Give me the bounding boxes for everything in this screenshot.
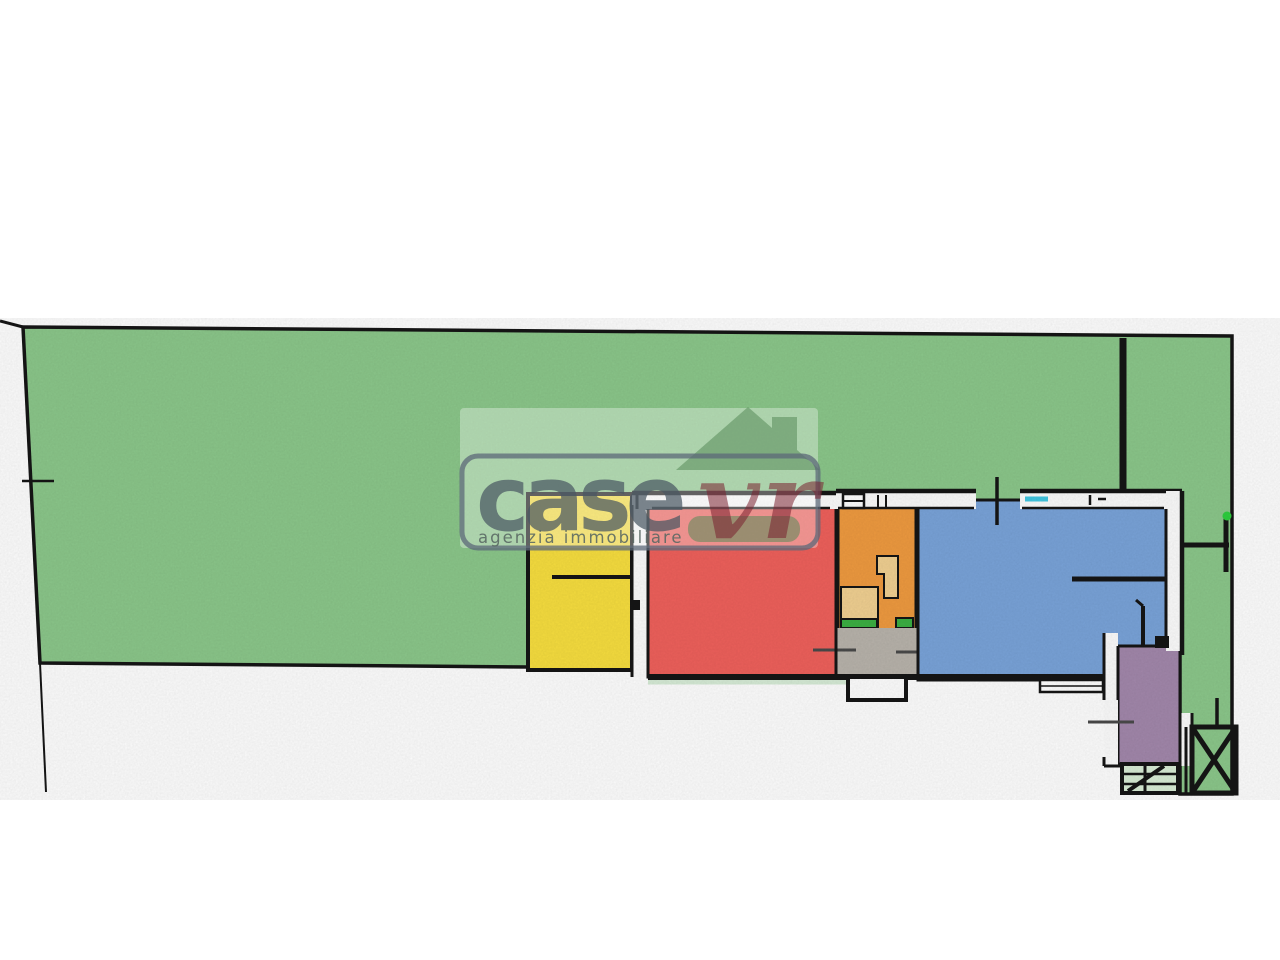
floor-plan-canvas: case vr agenzia immobiliare [0,0,1280,960]
brand-tagline-text: agenzia immobiliare [478,528,684,547]
floor-plan-image: case vr agenzia immobiliare [0,0,1280,960]
brand-vr-text: vr [698,438,825,563]
watermark-logo: case vr agenzia immobiliare [460,407,825,563]
paper-grain-overlay [0,318,1280,800]
